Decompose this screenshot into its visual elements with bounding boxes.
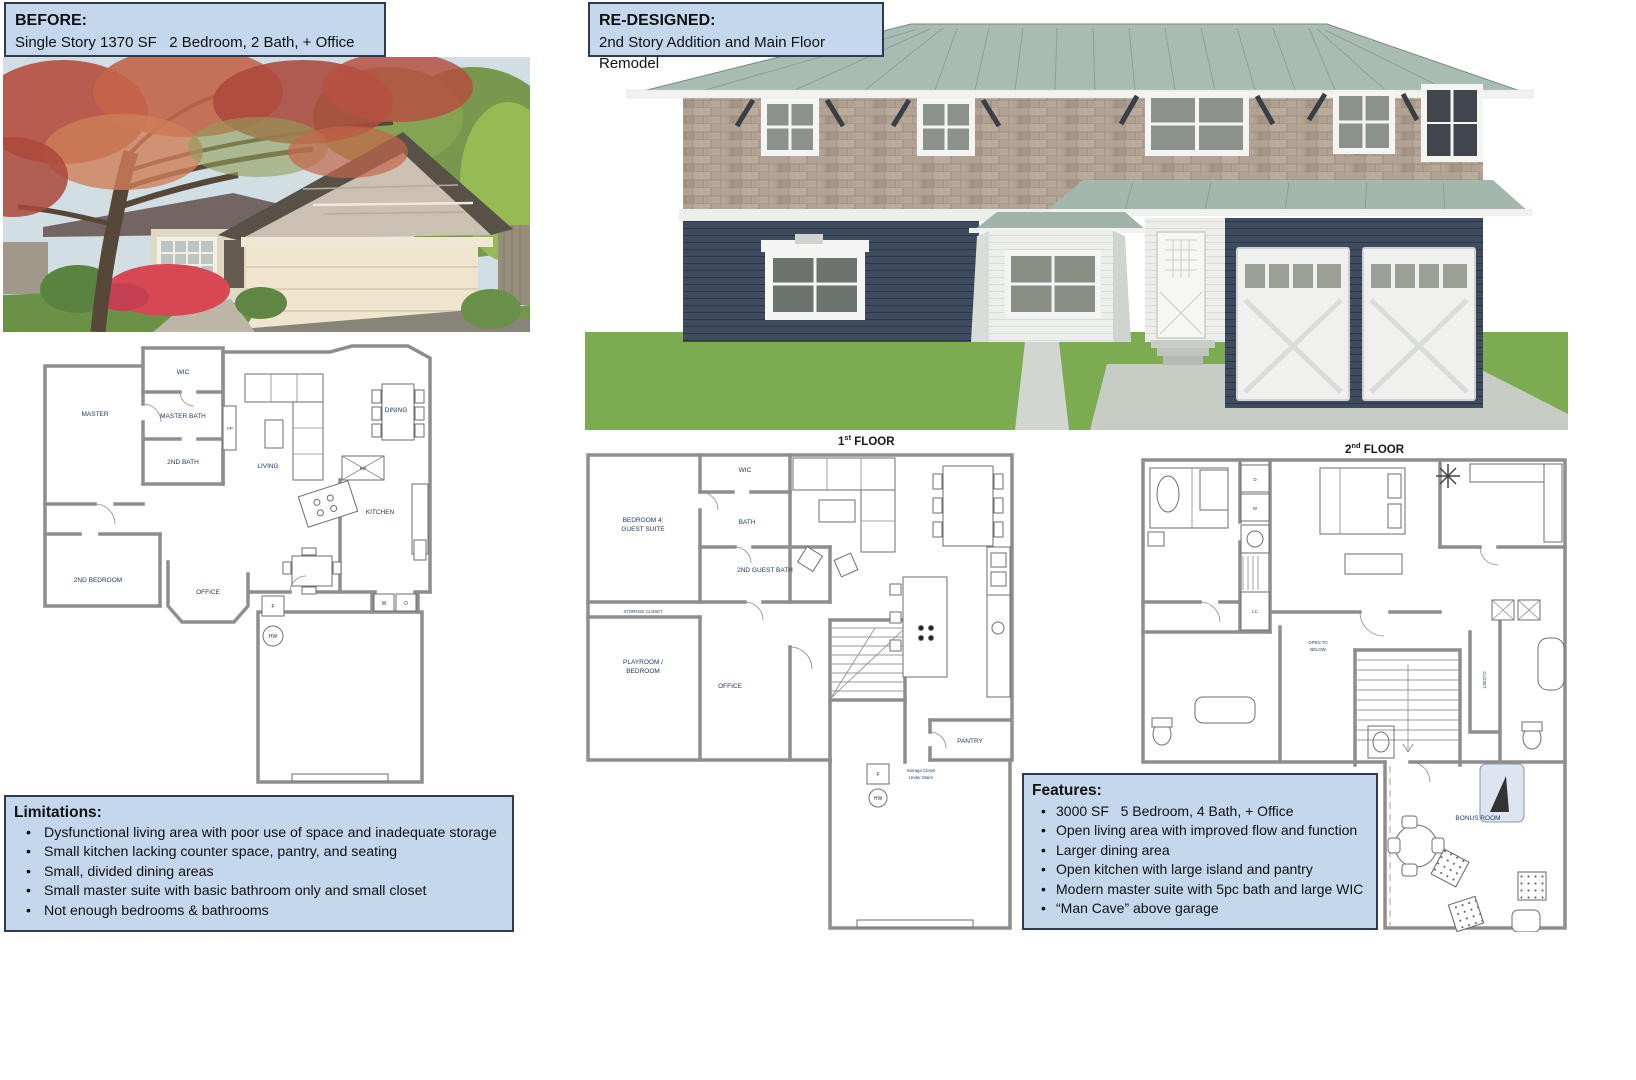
redesigned-subtitle: 2nd Story Addition and Main Floor Remode… bbox=[599, 32, 873, 74]
room-label-office: OFFICE bbox=[718, 683, 742, 690]
features-box: Features: 3000 SF 5 Bedroom, 4 Bath, + O… bbox=[1022, 773, 1378, 930]
label-bonus-room: BONUS ROOM bbox=[1455, 815, 1500, 822]
room-label-storage-closet: STORAGE CLOSET bbox=[623, 609, 663, 614]
label-fridge: Ref bbox=[360, 466, 367, 471]
room-label-playroom-1: PLAYROOM / bbox=[623, 659, 663, 666]
bullet-item: Larger dining area bbox=[1032, 841, 1368, 860]
first-floor-plan: WIC BEDROOM 4: GUEST SUITE BATH 2ND GUES… bbox=[585, 432, 1015, 932]
before-callout: BEFORE: Single Story 1370 SF 2 Bedroom, … bbox=[4, 2, 386, 57]
roof-fascia bbox=[627, 90, 1533, 98]
limitations-box: Limitations: Dysfunctional living area w… bbox=[4, 795, 514, 932]
label-lc: LC bbox=[1252, 609, 1258, 614]
room-label-living: LIVING bbox=[257, 463, 278, 470]
label-under-stairs-2: Under Stairs bbox=[909, 775, 933, 780]
left-wing-window bbox=[761, 234, 869, 320]
label-freezer: F bbox=[876, 772, 879, 778]
remodel-presentation-page: BEFORE: Single Story 1370 SF 2 Bedroom, … bbox=[0, 0, 1636, 1080]
before-photo bbox=[3, 57, 530, 332]
room-label-office: OFFICE bbox=[196, 589, 220, 596]
room-label-pantry: PANTRY bbox=[957, 738, 983, 745]
before-title: BEFORE: bbox=[15, 9, 375, 32]
label-dryer: D bbox=[404, 601, 408, 607]
front-door bbox=[1151, 232, 1215, 365]
label-open-2: BELOW bbox=[1310, 647, 1326, 652]
label-under-stairs-1: Storage Closet bbox=[907, 768, 936, 773]
room-label-kitchen: KITCHEN bbox=[366, 509, 395, 516]
bullet-item: Small kitchen lacking counter space, pan… bbox=[14, 843, 504, 862]
room-label-2nd-bath: 2ND BATH bbox=[167, 459, 199, 466]
bullet-item: Modern master suite with 5pc bath and la… bbox=[1032, 880, 1368, 899]
label-open-1: OPEN TO bbox=[1308, 640, 1328, 645]
room-label-dining: DINING bbox=[385, 407, 408, 414]
bullet-item: “Man Cave” above garage bbox=[1032, 899, 1368, 918]
bullet-item: Small, divided dining areas bbox=[14, 863, 504, 882]
label-washer: W bbox=[382, 601, 387, 607]
label-dryer: D bbox=[1253, 477, 1256, 482]
second-floor-title: 2nd FLOOR bbox=[1345, 441, 1404, 456]
bullet-item: Small master suite with basic bathroom o… bbox=[14, 882, 504, 901]
room-label-2nd-bedroom: 2ND BEDROOM bbox=[74, 577, 122, 584]
features-title: Features: bbox=[1032, 781, 1368, 801]
room-label-wic: WIC bbox=[177, 369, 190, 376]
limitations-title: Limitations: bbox=[14, 803, 504, 823]
bullet-item: Not enough bedrooms & bathrooms bbox=[14, 902, 504, 921]
redesigned-title: RE-DESIGNED: bbox=[599, 9, 873, 32]
bullet-item: Dysfunctional living area with poor use … bbox=[14, 824, 504, 843]
label-freezer: F bbox=[271, 604, 274, 610]
label-closet: CLOSET bbox=[1482, 671, 1487, 689]
bullet-item: Open living area with improved flow and … bbox=[1032, 821, 1368, 840]
limitations-list: Dysfunctional living area with poor use … bbox=[14, 824, 504, 921]
room-label-bedroom4-1: BEDROOM 4: bbox=[623, 517, 664, 524]
room-label-bedroom4-2: GUEST SUITE bbox=[621, 526, 665, 533]
redesigned-render bbox=[585, 12, 1568, 430]
room-label-master-bath: MASTER BATH bbox=[160, 413, 206, 420]
before-subtitle: Single Story 1370 SF 2 Bedroom, 2 Bath, … bbox=[15, 32, 375, 53]
label-fireplace: FP bbox=[227, 426, 233, 431]
room-label-playroom-2: BEDROOM bbox=[626, 668, 660, 675]
first-floor-title: 1st FLOOR bbox=[838, 433, 895, 448]
bullet-item: Open kitchen with large island and pantr… bbox=[1032, 860, 1368, 879]
room-label-bath: BATH bbox=[739, 519, 756, 526]
features-list: 3000 SF 5 Bedroom, 4 Bath, + OfficeOpen … bbox=[1032, 802, 1368, 918]
label-water-heater: HW bbox=[269, 634, 278, 640]
room-label-master: MASTER bbox=[81, 411, 108, 418]
bullet-item: 3000 SF 5 Bedroom, 4 Bath, + Office bbox=[1032, 802, 1368, 821]
room-label-guest-bath: 2ND GUEST BATH bbox=[737, 567, 793, 574]
label-water-heater: HW bbox=[874, 796, 883, 802]
before-floorplan: WIC MASTER MASTER BATH 2ND BATH 2ND BEDR… bbox=[40, 344, 435, 786]
redesigned-callout: RE-DESIGNED: 2nd Story Addition and Main… bbox=[588, 2, 884, 57]
room-label-wic: WIC bbox=[739, 467, 752, 474]
